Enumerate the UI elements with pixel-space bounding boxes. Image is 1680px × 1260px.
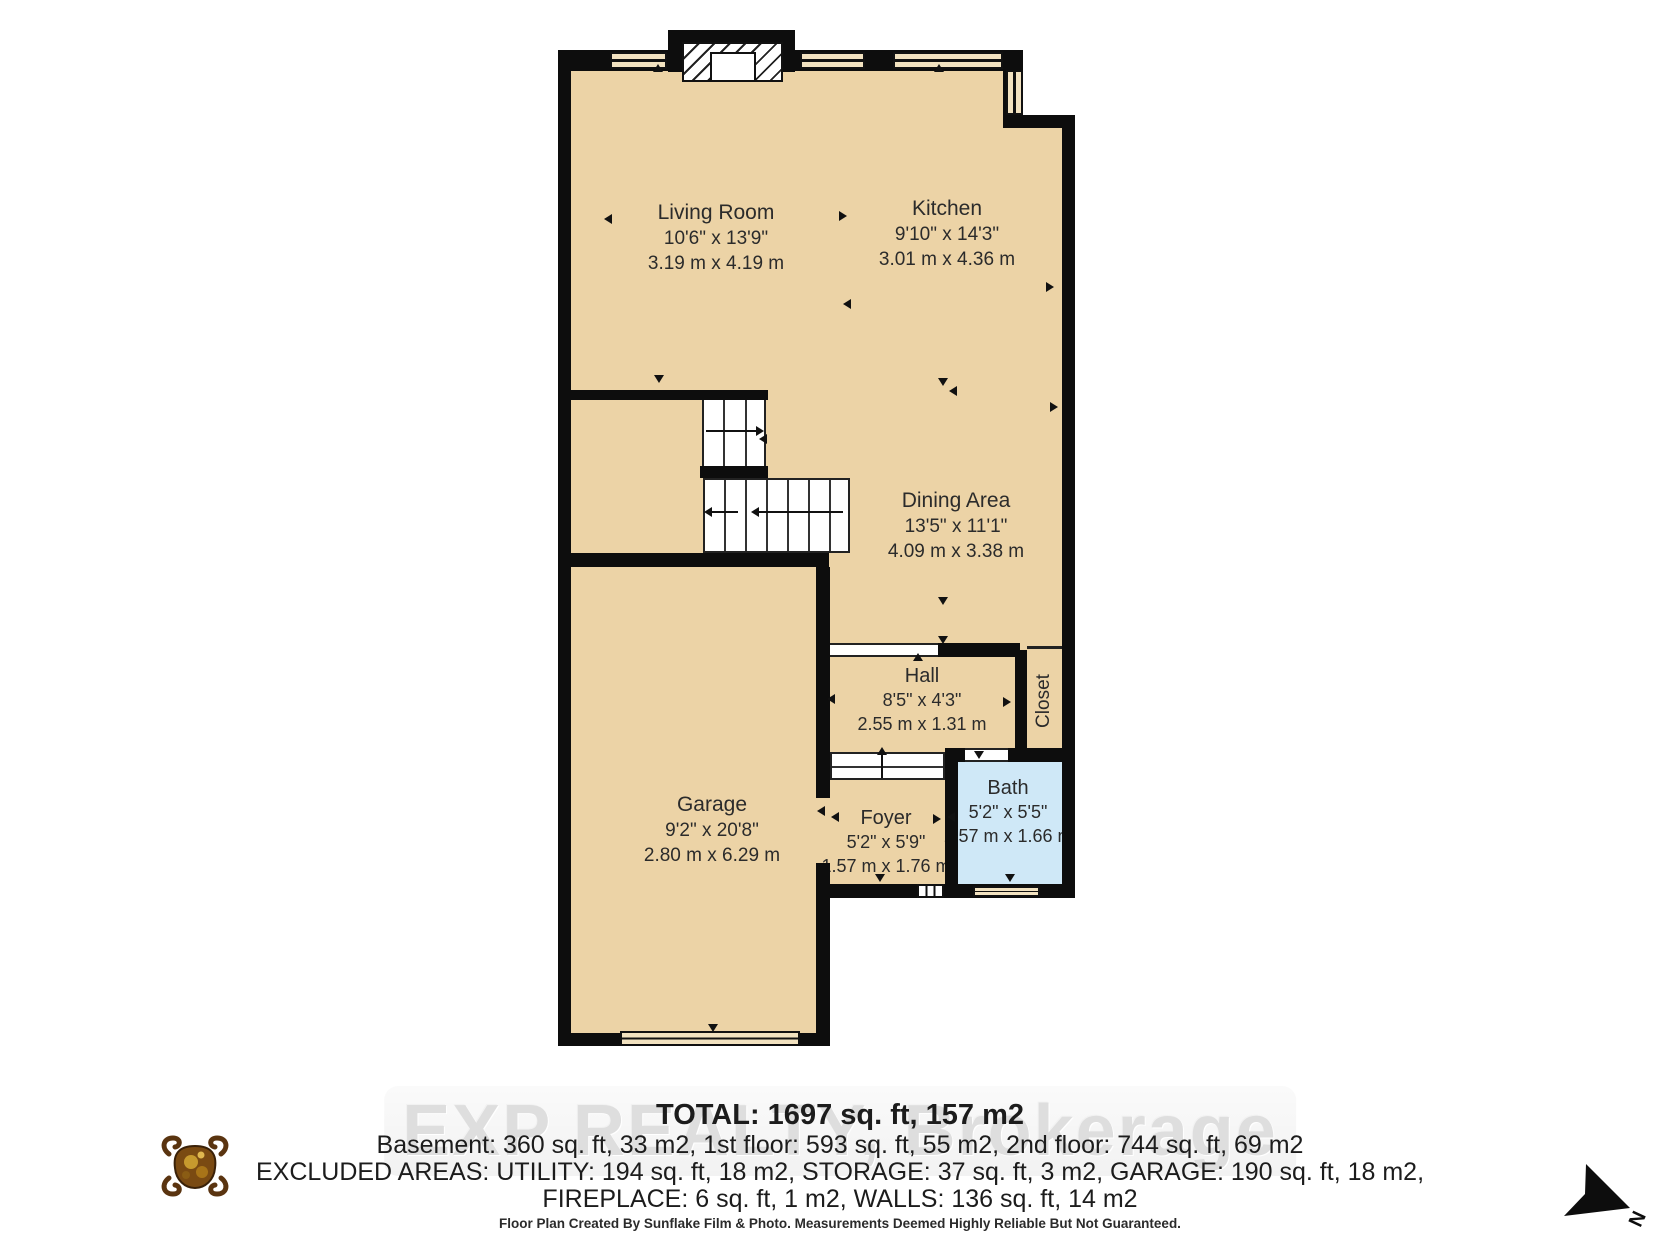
wall-garage-right-lower: [816, 863, 830, 1046]
stair-tread: [829, 480, 831, 551]
disclaimer-note: Floor Plan Created By Sunflake Film & Ph…: [0, 1216, 1680, 1231]
garage-door-marker: [817, 806, 825, 816]
opening-marker: [827, 694, 835, 704]
room-name: Kitchen: [879, 196, 1015, 222]
room-name: Dining Area: [888, 488, 1024, 514]
opening-marker: [843, 299, 851, 309]
room-dim-metric: 3.19 m x 4.19 m: [648, 251, 784, 276]
opening-marker: [1050, 402, 1058, 412]
garage-door: [620, 1031, 800, 1046]
room-dim-imperial: 10'6" x 13'9": [648, 226, 784, 251]
opening-marker: [938, 378, 948, 386]
opening-marker: [913, 653, 923, 661]
entry-step-arrow-head: [877, 747, 887, 755]
wall-living-stairs: [558, 390, 768, 400]
floor-plan-page: Living Room 10'6" x 13'9" 3.19 m x 4.19 …: [0, 0, 1680, 1260]
room-name: Garage: [644, 792, 780, 818]
room-dim-metric: 1.57 m x 1.66 m: [943, 824, 1072, 848]
stair-down-arrow-line: [712, 511, 738, 513]
wall-stairs-garage: [558, 553, 829, 567]
exterior-notch: [1023, 0, 1075, 117]
room-name: Bath: [943, 776, 1072, 800]
opening-marker: [1046, 282, 1054, 292]
window-living-right: [800, 52, 865, 69]
opening-marker: [938, 597, 948, 605]
room-dim-metric: 1.57 m x 1.76 m: [821, 854, 950, 878]
crest-icon: [155, 1128, 235, 1204]
room-dim-metric: 3.01 m x 4.36 m: [879, 247, 1015, 272]
stair-tread: [745, 400, 747, 466]
room-dim-imperial: 5'2" x 5'5": [943, 800, 1072, 824]
step-edge: [832, 766, 943, 768]
wall-bath-closet-bottom: [1008, 748, 1075, 762]
wall-garage-right-upper: [816, 567, 830, 798]
exterior-lower-right: [830, 898, 1075, 1033]
room-label-closet: Closet: [1033, 669, 1055, 733]
wall-foyer-bath: [945, 748, 958, 898]
opening-marker: [604, 214, 612, 224]
opening-marker: [1003, 697, 1011, 707]
garage-door-marker: [708, 1024, 718, 1032]
wall-hall-top: [938, 643, 1020, 657]
total-area: TOTAL: 1697 sq. ft, 157 m2: [0, 1098, 1680, 1132]
room-dim-metric: 2.55 m x 1.31 m: [857, 712, 986, 736]
room-name: Foyer: [821, 806, 950, 830]
sunflake-crest-logo: [155, 1128, 235, 1204]
stair-tread: [745, 480, 747, 551]
room-dim-imperial: 13'5" x 11'1": [888, 514, 1024, 539]
room-dim-imperial: 8'5" x 4'3": [857, 688, 986, 712]
opening-marker: [933, 814, 941, 824]
entry-steps: [830, 752, 945, 780]
front-door: [917, 884, 944, 898]
bath-window-marker: [1005, 874, 1015, 882]
stair-down-arrow-head: [751, 507, 759, 517]
room-dim-metric: 2.80 m x 6.29 m: [644, 843, 780, 868]
entry-step-arrow-line: [881, 754, 883, 778]
opening-marker: [839, 211, 847, 221]
stair-up-arrow-line: [706, 430, 756, 432]
staircase-lower-flight: [703, 478, 850, 553]
opening-marker: [974, 751, 984, 759]
window-kitchen-side: [1006, 70, 1023, 115]
room-label-hall: Hall 8'5" x 4'3" 2.55 m x 1.31 m: [857, 664, 986, 736]
floor-areas: Basement: 360 sq. ft, 33 m2, 1st floor: …: [0, 1132, 1680, 1159]
north-arrow: N: [1556, 1152, 1666, 1244]
wall-bath-top-left: [958, 748, 965, 762]
bath-door-opening: [965, 748, 1008, 762]
room-name: Living Room: [648, 200, 784, 226]
room-label-kitchen: Kitchen 9'10" x 14'3" 3.01 m x 4.36 m: [879, 196, 1015, 272]
stair-tread: [766, 480, 768, 551]
room-dim-imperial: 5'2" x 5'9": [821, 830, 950, 854]
opening-marker: [654, 375, 664, 383]
fireplace-firebox: [710, 52, 756, 82]
stair-tread: [808, 480, 810, 551]
room-dim-imperial: 9'2" x 20'8": [644, 818, 780, 843]
room-label-dining: Dining Area 13'5" x 11'1" 4.09 m x 3.38 …: [888, 488, 1024, 564]
opening-marker: [934, 64, 944, 72]
stair-down-arrow-head: [704, 507, 712, 517]
compass-label: N: [1623, 1207, 1649, 1229]
opening-marker: [947, 812, 955, 822]
room-name: Hall: [857, 664, 986, 688]
excluded-areas-line2: FIREPLACE: 6 sq. ft, 1 m2, WALLS: 136 sq…: [0, 1186, 1680, 1213]
area-summary: TOTAL: 1697 sq. ft, 157 m2 Basement: 360…: [0, 1098, 1680, 1213]
opening-marker: [831, 812, 839, 822]
stair-down-arrow-line: [759, 511, 843, 513]
wall-right: [1062, 115, 1075, 898]
wall-hall-closet: [1015, 650, 1027, 762]
stair-tread: [787, 480, 789, 551]
room-label-bath: Bath 5'2" x 5'5" 1.57 m x 1.66 m: [943, 776, 1072, 848]
opening-marker: [653, 64, 663, 72]
closet-opening: [1027, 646, 1062, 649]
opening-marker: [938, 636, 948, 644]
excluded-areas-line1: EXCLUDED AREAS: UTILITY: 194 sq. ft, 18 …: [0, 1159, 1680, 1186]
wall-left: [558, 50, 571, 1046]
room-label-garage: Garage 9'2" x 20'8" 2.80 m x 6.29 m: [644, 792, 780, 868]
stair-tread: [724, 480, 726, 551]
stair-tread: [723, 400, 725, 466]
opening-marker: [759, 434, 767, 444]
wall-stair-mid: [700, 466, 768, 478]
compass-icon: N: [1556, 1152, 1666, 1244]
room-dim-imperial: 9'10" x 14'3": [879, 222, 1015, 247]
room-name: Closet: [1033, 674, 1054, 728]
opening-marker: [949, 386, 957, 396]
window-bath: [973, 886, 1040, 897]
front-door-marker: [875, 874, 885, 882]
window-kitchen: [893, 52, 1003, 69]
room-label-foyer: Foyer 5'2" x 5'9" 1.57 m x 1.76 m: [821, 806, 950, 878]
room-label-living: Living Room 10'6" x 13'9" 3.19 m x 4.19 …: [648, 200, 784, 276]
room-dim-metric: 4.09 m x 3.38 m: [888, 539, 1024, 564]
